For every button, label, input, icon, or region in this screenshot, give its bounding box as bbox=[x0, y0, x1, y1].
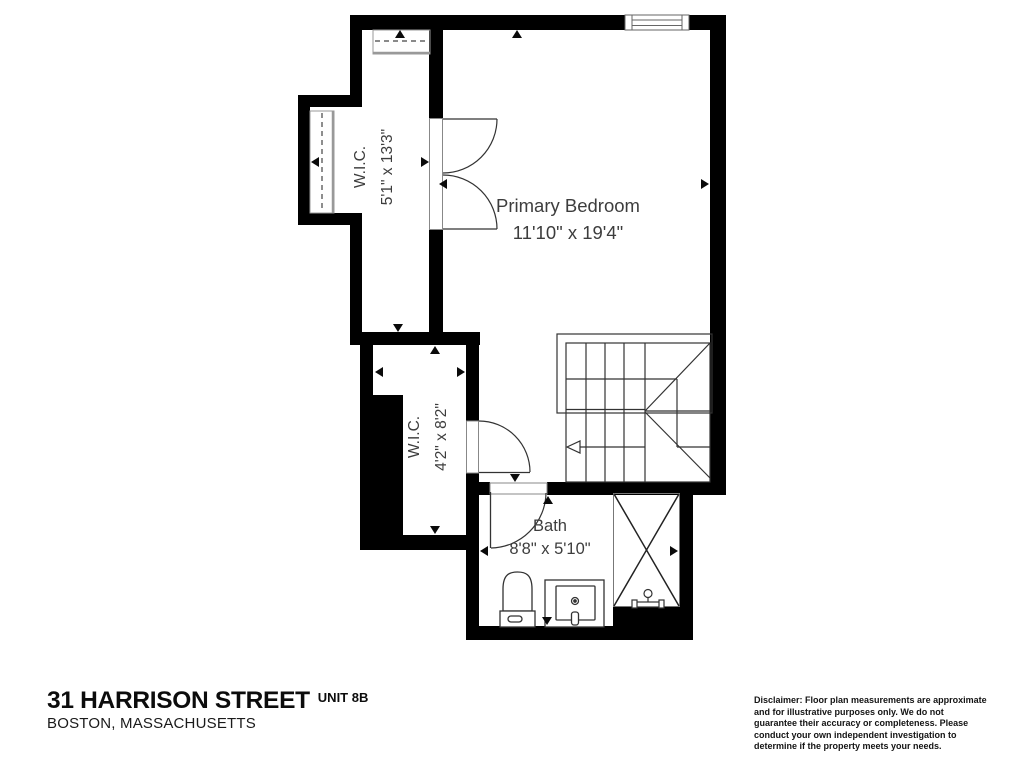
property-city: BOSTON, MASSACHUSETTS bbox=[47, 715, 368, 732]
room-dimensions: 8'8" x 5'10" bbox=[469, 538, 631, 561]
window-icon bbox=[625, 15, 689, 30]
floor-plan-drawing bbox=[0, 0, 1024, 768]
sink-vanity-icon bbox=[545, 580, 604, 627]
closet-door-icon bbox=[467, 421, 531, 473]
floor-plan-page: Primary Bedroom 11'10" x 19'4" W.I.C. 5'… bbox=[0, 0, 1024, 768]
shower-valve-icon bbox=[632, 590, 664, 609]
wic-lower-label: W.I.C. 4'2" x 8'2" bbox=[400, 357, 456, 517]
disclaimer-text: Disclaimer: Floor plan measurements are … bbox=[754, 695, 988, 753]
room-name: Primary Bedroom bbox=[438, 192, 698, 219]
title-block: 31 HARRISON STREET UNIT 8B BOSTON, MASSA… bbox=[47, 688, 368, 732]
bath-label: Bath 8'8" x 5'10" bbox=[469, 515, 631, 561]
toilet-icon bbox=[500, 572, 535, 627]
primary-bedroom-label: Primary Bedroom 11'10" x 19'4" bbox=[438, 192, 698, 246]
staircase-icon bbox=[557, 334, 712, 482]
stair-direction-arrow bbox=[567, 441, 580, 453]
room-dimensions: 11'10" x 19'4" bbox=[438, 219, 698, 246]
room-dimensions: 5'1" x 13'3" bbox=[374, 129, 401, 205]
wic-upper-label: W.I.C. 5'1" x 13'3" bbox=[346, 87, 402, 247]
room-name: Bath bbox=[469, 515, 631, 538]
property-unit: UNIT 8B bbox=[318, 688, 369, 705]
room-name: W.I.C. bbox=[401, 416, 428, 458]
room-dimensions: 4'2" x 8'2" bbox=[428, 403, 455, 471]
room-name: W.I.C. bbox=[347, 146, 374, 188]
property-address: 31 HARRISON STREET bbox=[47, 688, 310, 714]
